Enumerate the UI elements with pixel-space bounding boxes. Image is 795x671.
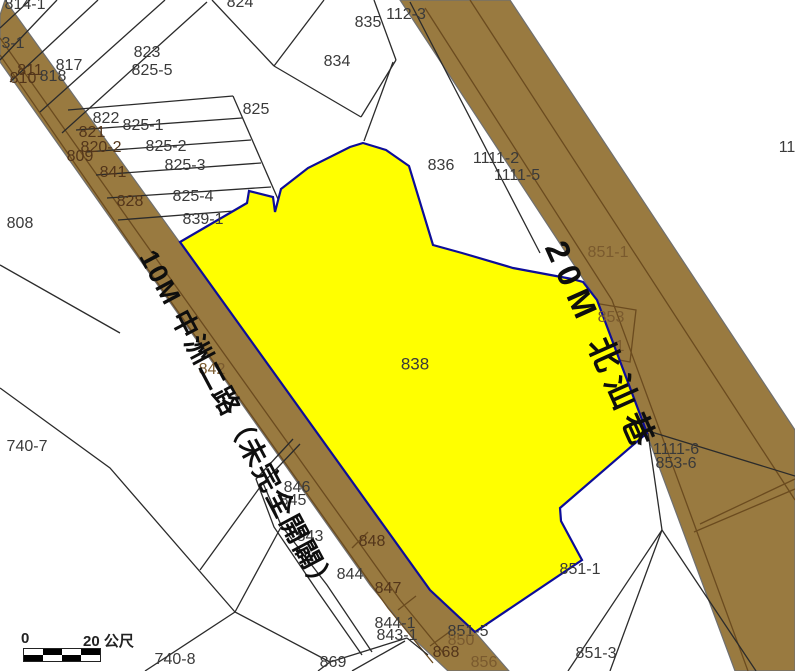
- map-canvas: [0, 0, 795, 671]
- scale-bar: [23, 648, 101, 662]
- scalebar-cell: [81, 655, 100, 661]
- cadastral-map: 814-13-1824823825-5817811818810825822825…: [0, 0, 795, 671]
- scalebar-cell: [24, 655, 43, 661]
- scalebar-cell: [62, 655, 81, 661]
- scalebar-cell: [43, 655, 62, 661]
- scalebar-zero-label: 0: [21, 630, 29, 647]
